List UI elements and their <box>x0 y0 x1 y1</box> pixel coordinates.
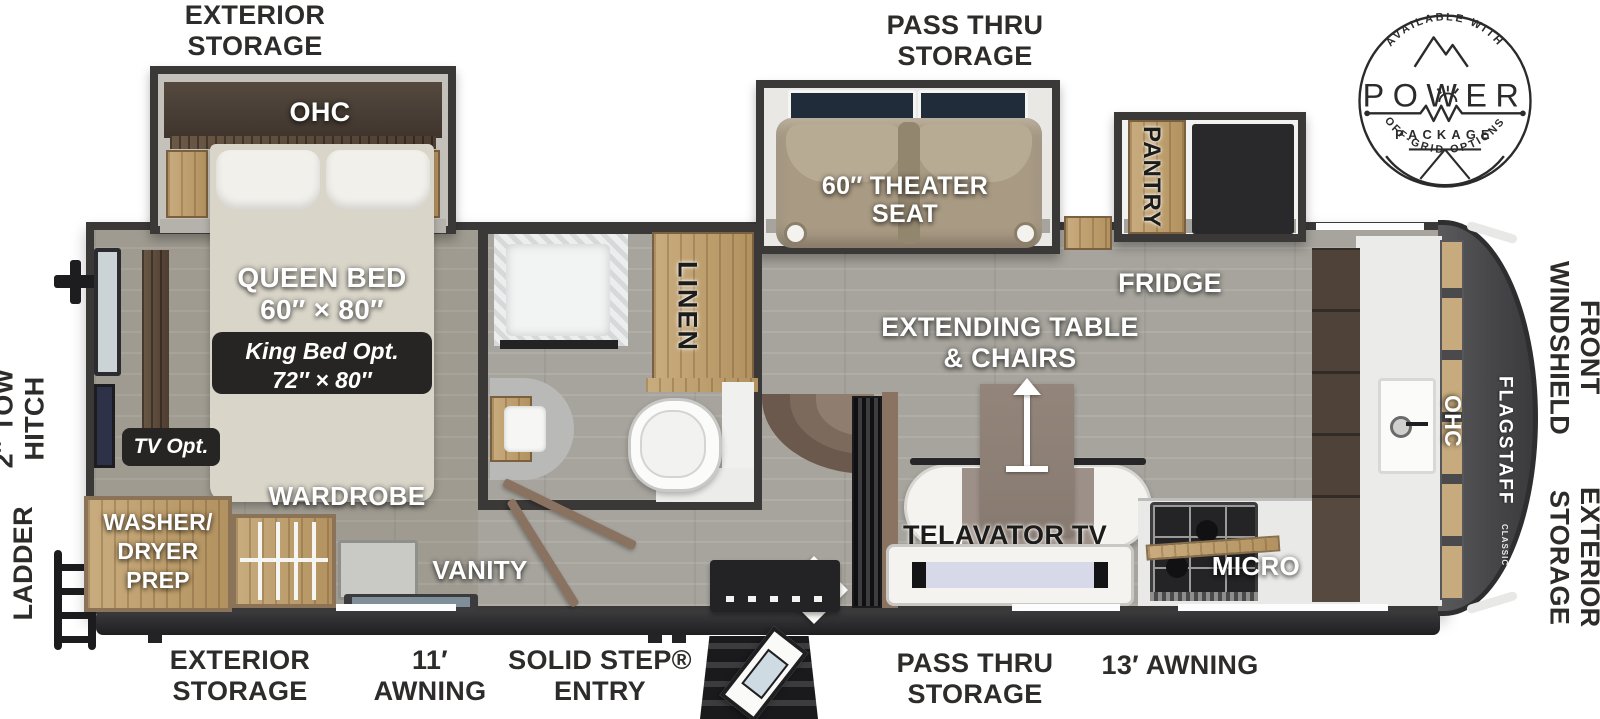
window-slit-top-right <box>1316 223 1424 230</box>
badge-power-word: POWER <box>1363 78 1528 114</box>
fireplace-slat-wall <box>852 396 882 608</box>
vanity-cabinet <box>338 540 418 600</box>
power-package-badge: AVAILABLE WITH OFF-GRID OPTIONS POWER PA… <box>1350 6 1540 196</box>
label-queen-bed: QUEEN BED 60″ × 80″ <box>212 262 432 325</box>
toilet-lid <box>640 410 706 478</box>
extend-arrow-head <box>1013 378 1041 395</box>
upper-cabinet-band <box>1312 248 1360 498</box>
chassis-tab-entry-2 <box>672 633 686 643</box>
badge-package-word: PACKAGE <box>1395 127 1495 142</box>
chassis-tab-left <box>148 633 162 643</box>
stove-burner-1 <box>1196 520 1218 542</box>
label-solid-step-entry: SOLID STEP® ENTRY <box>500 645 700 706</box>
lower-cabinet-band <box>1312 498 1360 602</box>
window-slit-bottom-mid <box>1012 604 1120 611</box>
kitchen-faucet <box>1390 416 1412 438</box>
fridge-box <box>1192 124 1294 234</box>
window-slit-bottom-right <box>1178 604 1388 611</box>
label-front-windshield: FRONT WINDSHIELD <box>1544 250 1600 445</box>
stove-vent <box>1150 592 1258 601</box>
entry-step-dots <box>726 596 826 602</box>
svg-text:AVAILABLE WITH: AVAILABLE WITH <box>1384 11 1506 49</box>
extend-arrow-shaft <box>1024 394 1030 468</box>
ladder-rung-3 <box>54 612 96 619</box>
bed-pillow-right <box>326 150 430 210</box>
floorplan-canvas: EXTERIOR STORAGE PASS THRU STORAGE 2″ TO… <box>0 0 1600 719</box>
bed-pillow-left <box>216 150 320 210</box>
chassis-tab-entry <box>648 633 662 643</box>
extend-arrow-base <box>1006 466 1048 472</box>
theater-cupholder-right <box>1014 222 1037 245</box>
stove-burner-2 <box>1166 556 1188 578</box>
bedroom-nightstand-left <box>166 150 208 218</box>
label-top-pass-thru-storage: PASS THRU STORAGE <box>850 10 1080 71</box>
label-vanity: VANITY <box>420 556 540 585</box>
badge-available-with: AVAILABLE WITH <box>1384 11 1506 49</box>
label-pantry: PANTRY <box>1138 120 1165 234</box>
kitchen-faucet-handle <box>1406 422 1428 426</box>
label-washer-dryer: WASHER/ DRYER PREP <box>84 508 232 594</box>
rear-tv <box>94 384 115 468</box>
counter-nook <box>1064 216 1112 250</box>
window-slit-bottom-left <box>336 604 456 611</box>
entry-step-box <box>710 560 840 612</box>
label-bottom-pass-thru: PASS THRU STORAGE <box>880 648 1070 709</box>
label-awning-13: 13′ AWNING <box>1090 650 1270 681</box>
label-extending-table: EXTENDING TABLE & CHAIRS <box>880 312 1140 373</box>
label-right-exterior-storage: EXTERIOR STORAGE <box>1544 460 1600 655</box>
ladder-rung-4 <box>54 636 96 643</box>
dinette-table-rail-left <box>910 458 986 465</box>
label-bedroom-ohc: OHC <box>250 97 390 128</box>
tv-screen <box>912 562 1108 588</box>
wardrobe-rail <box>240 558 328 562</box>
label-tow-hitch: 2″ TOW HITCH <box>0 344 50 494</box>
label-wardrobe: WARDROBE <box>252 482 442 511</box>
bath-sink-basin <box>504 406 546 452</box>
label-theater-seat: 60″ THEATER SEAT <box>795 172 1015 229</box>
label-bottom-exterior-storage: EXTERIOR STORAGE <box>130 645 350 706</box>
label-ladder: LADDER <box>8 478 39 648</box>
flagstaff-series: CLASSIC <box>1500 524 1509 564</box>
linen-cabinet <box>652 232 754 380</box>
label-linen: LINEN <box>672 236 703 376</box>
label-front-ohc: OHC <box>1440 376 1466 466</box>
label-fridge: FRIDGE <box>1105 268 1235 299</box>
label-top-exterior-storage: EXTERIOR STORAGE <box>140 0 370 61</box>
dinette-table-rail-right <box>1070 458 1146 465</box>
label-micro: MICRO <box>1196 552 1316 581</box>
rear-window <box>94 248 121 376</box>
shower-pan <box>506 244 610 336</box>
tow-hitch-bar-h <box>54 275 98 288</box>
shower-door <box>500 340 618 349</box>
power-package-badge-art: AVAILABLE WITH OFF-GRID OPTIONS POWER PA… <box>1350 6 1540 196</box>
tv-option-badge: TV Opt. <box>122 428 220 466</box>
label-awning-11: 11′ AWNING <box>360 645 500 706</box>
flagstaff-brand: FLAGSTAFF <box>1494 356 1515 526</box>
king-bed-option-badge: King Bed Opt. 72″ × 80″ <box>212 332 432 394</box>
tow-hitch-icon <box>54 260 98 304</box>
